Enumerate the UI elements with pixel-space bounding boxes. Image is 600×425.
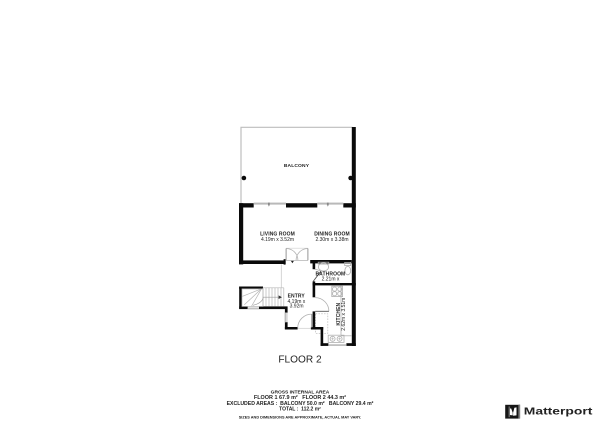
svg-text:2.62m x 3.51m: 2.62m x 3.51m [341,298,347,331]
svg-text:SIZES AND DIMENSIONS ARE APPRO: SIZES AND DIMENSIONS ARE APPROXIMATE, AC… [239,415,362,419]
svg-text:Matterport: Matterport [524,407,594,418]
svg-text:2.30m x 3.38m: 2.30m x 3.38m [315,237,348,243]
svg-text:4.19m x 3.52m: 4.19m x 3.52m [261,237,294,243]
svg-text:TOTAL : 112.2 m²: TOTAL : 112.2 m² [279,407,321,413]
svg-text:BALCONY: BALCONY [284,163,310,169]
svg-text:FLOOR 2: FLOOR 2 [278,355,322,366]
svg-text:2.21m x: 2.21m x [322,276,340,282]
svg-text:3.92m: 3.92m [290,304,304,310]
